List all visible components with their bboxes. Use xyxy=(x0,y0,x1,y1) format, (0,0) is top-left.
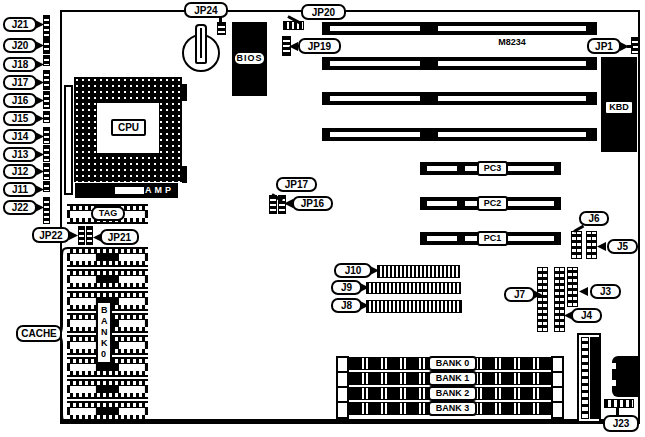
cpu-tab-top xyxy=(182,84,187,101)
label-j6: J6 xyxy=(579,211,609,226)
label-j8: J8 xyxy=(331,298,362,313)
amp-window xyxy=(115,187,144,194)
label-j3: J3 xyxy=(590,284,621,299)
j10-connector xyxy=(377,265,460,278)
j11-connector xyxy=(43,181,50,192)
label-j15: J15 xyxy=(3,111,37,126)
j17-connector xyxy=(43,70,50,90)
label-cache-bank0: BANK0 xyxy=(96,301,112,364)
power-connector xyxy=(577,333,601,423)
battery-plug-line xyxy=(200,28,202,58)
label-j9: J9 xyxy=(331,280,362,295)
j20-connector xyxy=(43,39,50,54)
cache-chip-row-1 xyxy=(67,247,148,267)
j4-connector xyxy=(554,267,565,332)
j8-connector xyxy=(366,300,462,313)
label-pc1: PC1 xyxy=(477,231,508,246)
isa-slot-4 xyxy=(322,128,597,141)
label-j18: J18 xyxy=(3,57,37,72)
label-jp22: JP22 xyxy=(32,227,70,243)
label-amp: AMP xyxy=(145,185,174,195)
label-j13: J13 xyxy=(3,147,37,162)
din-notch-top xyxy=(612,363,616,369)
label-jp17: JP17 xyxy=(276,177,317,192)
label-j4: J4 xyxy=(571,308,602,323)
j16-connector xyxy=(43,91,50,109)
isa-slot-2 xyxy=(322,57,597,70)
cache-chip-row-7 xyxy=(67,379,148,399)
power-connector-pins xyxy=(581,337,589,419)
cpu-side-bar xyxy=(64,85,73,195)
label-j12: J12 xyxy=(3,164,37,179)
keyboard-din-connector xyxy=(612,356,638,397)
label-jp19: JP19 xyxy=(298,38,341,54)
label-j14: J14 xyxy=(3,129,37,144)
jp1-stem xyxy=(627,45,633,48)
j6-connector xyxy=(571,231,582,259)
j23-connector xyxy=(604,399,634,408)
j12-connector xyxy=(43,163,50,180)
label-jp20: JP20 xyxy=(301,4,346,20)
j5-connector xyxy=(586,231,597,259)
j18-connector xyxy=(43,55,50,66)
battery-plug xyxy=(195,24,207,64)
label-j22: J22 xyxy=(3,200,37,215)
label-j5: J5 xyxy=(607,239,638,254)
cache-chip-row-8 xyxy=(67,401,148,421)
label-j20: J20 xyxy=(3,38,37,53)
label-j21: J21 xyxy=(3,17,37,32)
label-j17: J17 xyxy=(3,75,37,90)
j22-connector xyxy=(43,197,50,224)
cache-chip-row-2 xyxy=(67,269,148,289)
cpu-tab-bottom xyxy=(182,166,187,183)
label-j10: J10 xyxy=(334,263,372,278)
label-bank3: BANK 3 xyxy=(428,401,477,416)
jp24-jumper xyxy=(217,22,226,35)
label-pc3: PC3 xyxy=(477,161,508,176)
label-pc2: PC2 xyxy=(477,196,508,211)
isa-slot-3 xyxy=(322,92,597,105)
jp22-jumper xyxy=(78,226,85,245)
j3-connector xyxy=(567,267,578,307)
jp21-jumper xyxy=(86,226,93,245)
din-notch-bottom xyxy=(612,380,616,386)
label-j11: J11 xyxy=(3,182,37,197)
label-cpu: CPU xyxy=(111,119,146,136)
label-bios: BIOS xyxy=(233,51,266,66)
label-j16: J16 xyxy=(3,93,37,108)
label-kbd: KBD xyxy=(604,100,634,115)
j9-connector xyxy=(366,282,461,294)
label-cache: CACHE xyxy=(16,325,62,342)
label-bank2: BANK 2 xyxy=(428,386,477,401)
chipset-label: M8234 xyxy=(485,35,539,49)
j21-connector xyxy=(43,15,50,39)
label-tag: TAG xyxy=(91,206,125,221)
j7-connector xyxy=(537,267,548,332)
j15-connector xyxy=(43,111,50,123)
jp19-jumper xyxy=(282,36,291,56)
jp20-jumper xyxy=(283,21,304,30)
label-jp21: JP21 xyxy=(100,229,139,245)
j13-connector xyxy=(43,145,50,162)
label-jp1: JP1 xyxy=(587,38,621,54)
amp-regulator: AMP xyxy=(75,183,178,198)
label-jp16: JP16 xyxy=(292,196,333,211)
label-bank0: BANK 0 xyxy=(428,356,477,371)
label-j7: J7 xyxy=(504,287,535,302)
isa-slot-1 xyxy=(322,22,597,35)
label-jp24: JP24 xyxy=(184,2,228,18)
label-j23: J23 xyxy=(603,415,639,432)
motherboard-diagram: J21 J20 J18 J17 J16 J15 J14 J13 J12 J11 … xyxy=(0,0,645,437)
power-connector-body xyxy=(590,337,599,419)
j14-connector xyxy=(43,127,50,144)
label-bank1: BANK 1 xyxy=(428,371,477,386)
